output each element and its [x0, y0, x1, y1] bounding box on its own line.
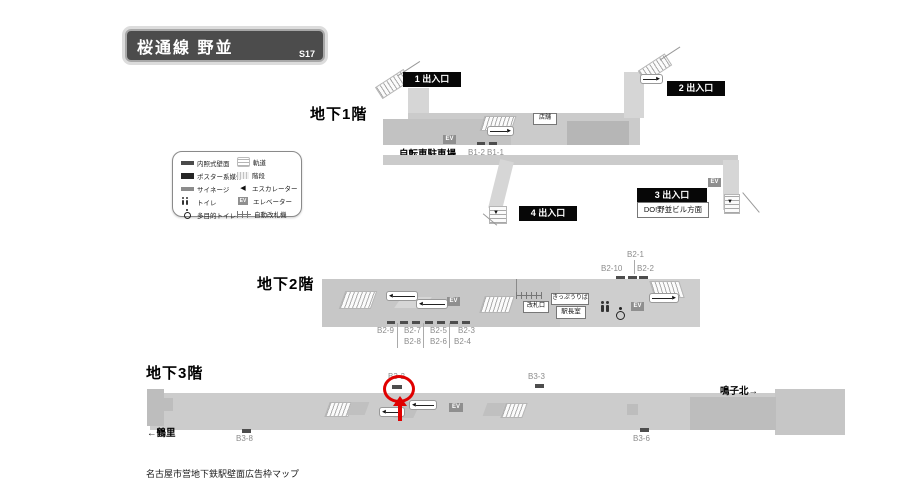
station-ad-map: 桜通線 野並 S17 内照式壁面 ポスター系媒体 サイネージ トイレ [0, 0, 919, 491]
b1-shop-area [567, 121, 629, 145]
legend-item-poster: ポスター系媒体 [181, 171, 243, 181]
ad-b2-1-pointer [634, 260, 635, 274]
track-icon [237, 157, 250, 167]
b1-exit2-sign: 2 出入口 [667, 81, 725, 96]
b2-escalator-icon-1: ◀ [386, 291, 418, 301]
ad-label-b3-3: B3-3 [528, 372, 545, 381]
illuminated-wall-icon [181, 161, 194, 165]
b1-escalator-icon: ▶ [487, 126, 514, 136]
ad-position-b3-8 [242, 429, 251, 433]
b2-ticket-window-sign: きっぷうりば [551, 293, 589, 305]
ad-label-b2-3: B2-3 [458, 326, 475, 335]
b2-escalator-icon-3: ▶ [649, 293, 679, 303]
ad-position-b2-7 [412, 321, 420, 324]
ad-label-b2-2: B2-2 [637, 264, 654, 273]
b1-exit3-destination-sign: DO!野並ビル方面 [637, 202, 709, 218]
b2-office-sign: 駅長室 [556, 306, 586, 319]
b1-elevator-icon: EV [443, 135, 456, 144]
ad-label-b2-9: B2-9 [377, 326, 394, 335]
b1-exit3-handrail [742, 192, 759, 213]
legend: 内照式壁面 ポスター系媒体 サイネージ トイレ 多目的トイレ [172, 151, 302, 217]
line-station-name: 桜通線 野並 [137, 34, 233, 58]
ad-label-b2-1: B2-1 [627, 250, 644, 259]
b1-exit4-down-arrow-icon: ▼ [493, 210, 499, 216]
b2-ticket-gates-icon [516, 292, 542, 299]
b2-accessible-toilet-icon [616, 311, 625, 320]
b3-direction-left: ←鶴里 [147, 425, 176, 439]
b1-exit4-sign: 4 出入口 [519, 206, 577, 221]
b3-right-extension [775, 389, 845, 435]
b3-direction-right: 鳴子北→ [720, 383, 758, 397]
stairs-icon [237, 172, 249, 179]
b2-stairs-mid [479, 296, 515, 313]
b3-left-notch [162, 398, 173, 411]
b1-exit2-escalator-icon: ▶ [640, 74, 663, 84]
b1-lower-corridor [383, 155, 738, 165]
wheelchair-icon [184, 212, 191, 219]
ad-label-b2-6: B2-6 [430, 337, 447, 346]
ad-group-separator [397, 323, 398, 348]
b1-exit4-corridor [488, 159, 514, 211]
b2-floor-label: 地下2階 [257, 273, 314, 294]
b2-elevator-icon-1: EV [447, 297, 460, 306]
ad-position-b2-1 [628, 276, 637, 279]
ad-label-b2-10: B2-10 [601, 264, 622, 273]
ticket-gate-icon [237, 211, 251, 218]
b3-escalator-icon-2: ◀ [409, 400, 437, 410]
escalator-icon: ◀ [237, 185, 249, 192]
b2-stairs-left [339, 291, 378, 309]
ad-position-b2-2 [639, 276, 648, 279]
toilet-icon [181, 200, 194, 205]
b2-elevator-icon-2: EV [631, 302, 644, 311]
b3-small-room [627, 404, 638, 415]
ad-position-b2-8 [400, 321, 408, 324]
ad-label-b2-4: B2-4 [454, 337, 471, 346]
legend-item-ticket-gate: 自動改札機 [237, 209, 298, 219]
ad-label-b2-7: B2-7 [404, 326, 421, 335]
legend-item-stairs: 階段 [237, 170, 298, 180]
ad-label-b2-8: B2-8 [404, 337, 421, 346]
station-code: S17 [299, 49, 315, 59]
ad-position-b1-1 [489, 142, 497, 145]
ad-position-b3-3 [535, 384, 544, 388]
ad-position-b2-3 [462, 321, 470, 324]
ad-position-b2-9 [387, 321, 395, 324]
b3-floor-label: 地下3階 [146, 362, 203, 383]
b1-exit3-sign: 3 出入口 [637, 188, 707, 202]
legend-item-track: 軌道 [237, 157, 298, 167]
legend-item-escalator: ◀ エスカレーター [237, 183, 298, 193]
ad-position-b3-6 [640, 428, 649, 432]
b1-floor-label: 地下1階 [310, 103, 367, 124]
ad-group-separator [423, 323, 424, 348]
b1-exit3-down-arrow-icon: ▼ [727, 199, 733, 205]
ad-position-b2-4 [450, 321, 458, 324]
legend-item-toilet: トイレ [181, 197, 243, 207]
b2-escalator-icon-2: ◀ [416, 299, 448, 309]
b1-exit1-sign: 1 出入口 [403, 72, 461, 87]
legend-item-signage: サイネージ [181, 184, 243, 194]
elevator-icon: EV [238, 197, 248, 205]
ad-label-b3-6: B3-6 [633, 434, 650, 443]
b1-shop-sign: 店舗 [533, 113, 557, 125]
b3-elevator-icon: EV [449, 403, 463, 412]
highlight-arrow-shaft [398, 405, 402, 421]
legend-item-illuminated-wall: 内照式壁面 [181, 158, 243, 168]
b1-exit3-elevator-icon: EV [708, 178, 721, 187]
ad-label-b3-8: B3-8 [236, 434, 253, 443]
b2-toilet-icon [600, 300, 613, 312]
ad-position-b2-10 [616, 276, 625, 279]
ad-position-b2-6 [425, 321, 433, 324]
ad-group-separator [449, 323, 450, 348]
ad-position-b1-2 [477, 142, 485, 145]
legend-item-elevator: EV エレベーター [237, 196, 298, 206]
b3-right-room [690, 397, 776, 430]
station-title-plate: 桜通線 野並 S17 [125, 29, 325, 62]
b2-gate-sign: 改札口 [523, 301, 549, 313]
map-caption: 名古屋市営地下鉄駅壁面広告枠マップ [146, 467, 299, 480]
ad-position-b2-5 [437, 321, 445, 324]
ad-label-b2-5: B2-5 [430, 326, 447, 335]
legend-item-accessible-toilet: 多目的トイレ [181, 210, 243, 220]
poster-media-icon [181, 173, 194, 179]
signage-icon [181, 187, 194, 191]
